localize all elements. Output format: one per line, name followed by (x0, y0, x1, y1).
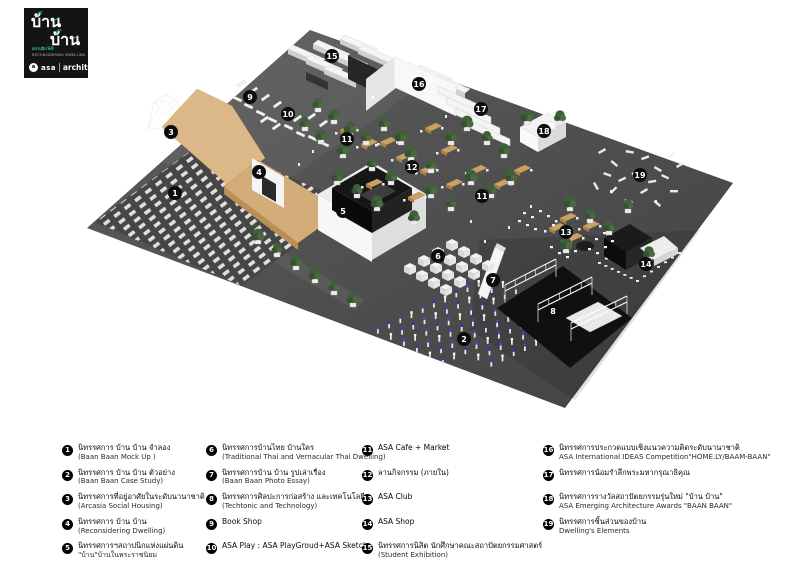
tree-planter (255, 240, 261, 244)
legend-number-badge: 11 (362, 445, 373, 456)
cafe-chair (382, 183, 385, 186)
tree-canopy (334, 285, 339, 290)
legend-item-text: ลานกิจกรรม (ภายใน) (378, 469, 449, 478)
model-pedestal (507, 317, 509, 322)
legend-number-badge: 13 (362, 494, 373, 505)
model-blue (474, 330, 476, 333)
legend-line-primary: ASA Play : ASA PlayGroud+ASA Sketch (222, 542, 356, 551)
marker-19: 19 (633, 168, 647, 182)
legend-item-4: 4นิทรรศการ บ้าน บ้าน(Reconsidering Dwell… (62, 518, 204, 543)
legend-line-primary: นิทรรศการชิ้นส่วนของบ้าน (559, 518, 646, 527)
marker-3: 3 (164, 125, 178, 139)
tree-canopy (526, 114, 533, 121)
tree-canopy (400, 134, 407, 141)
model-pedestal (424, 320, 426, 325)
legend-item-1: 1นิทรรศการ บ้าน บ้าน จำลอง(Baan Baan Moc… (62, 444, 204, 469)
marker-14: 14 (639, 257, 653, 271)
model-blue (425, 328, 427, 331)
legend-item-2: 2นิทรรศการ บ้าน บ้าน ตัวอย่าง(Baan Baan … (62, 469, 204, 494)
model-pedestal (498, 334, 500, 339)
model-pedestal (500, 345, 502, 350)
tree-canopy (305, 121, 310, 126)
model-pedestal (448, 321, 450, 326)
marker-number: 5 (340, 207, 346, 216)
tree-planter (340, 154, 346, 158)
tree-planter (302, 127, 308, 131)
stanchion-dash (623, 274, 626, 276)
legend-column-3: 11ASA Cafe + Market12ลานกิจกรรม (ภายใน)1… (362, 444, 538, 566)
legend-number-badge: 12 (362, 470, 373, 481)
tree-canopy (511, 175, 517, 181)
tree-planter (587, 219, 593, 223)
stanchion-dash (604, 265, 607, 267)
tree-canopy (404, 150, 411, 157)
legend-line-secondary: ASA Emerging Architecture Awards "BAAN B… (559, 502, 732, 510)
tree-canopy (559, 242, 566, 249)
marker-number: 18 (538, 127, 550, 136)
marker-17: 17 (474, 102, 488, 116)
legend-line-primary: นิทรรศการ บ้าน บ้าน (78, 518, 165, 527)
tree-canopy (451, 201, 456, 206)
model-pedestal (494, 311, 496, 316)
model-pedestal (524, 346, 526, 351)
legend-line-secondary: (Baan Baan Mock Up ) (78, 453, 170, 461)
model-blue (442, 357, 444, 360)
model-pedestal (485, 328, 487, 333)
marker-number: 19 (634, 171, 646, 180)
tree-planter (448, 141, 454, 145)
cafe-chair (356, 146, 359, 149)
tree-canopy (334, 114, 340, 120)
tree-canopy (308, 272, 315, 279)
cafe-chair (576, 217, 579, 220)
legend-item-text: ASA Cafe + Market (378, 444, 449, 453)
model-blue (423, 317, 425, 320)
legend-item-11: 11ASA Cafe + Market (362, 444, 538, 469)
tree-planter (398, 141, 404, 145)
visitor-speck (372, 96, 374, 99)
model-white (511, 338, 513, 340)
tree-planter (331, 120, 337, 124)
marker-number: 11 (476, 192, 488, 201)
legend-item-text: Book Shop (222, 518, 262, 527)
legend-number-badge: 8 (206, 494, 217, 505)
legend-number-badge: 9 (206, 519, 217, 530)
tree-canopy (353, 297, 359, 303)
model-pedestal (435, 314, 437, 319)
cafe-chair (420, 130, 423, 133)
stanchion-dash (664, 261, 667, 263)
model-pedestal (416, 348, 418, 353)
model-pedestal (478, 282, 480, 287)
legend-line-secondary: (Reconsidering Dwelling) (78, 527, 165, 535)
legend-item-13: 13ASA Club (362, 493, 538, 518)
tree-canopy (394, 134, 401, 141)
model-pedestal (411, 313, 413, 318)
marker-number: 17 (475, 105, 486, 114)
cafe-chair (375, 144, 378, 147)
model-pedestal (438, 337, 440, 342)
tree-canopy (337, 175, 343, 181)
tree-canopy (560, 115, 566, 121)
tree-planter (274, 253, 280, 257)
model-pedestal (472, 322, 474, 327)
tree-canopy (299, 121, 304, 126)
model-pedestal (459, 315, 461, 320)
tree-canopy (366, 161, 371, 166)
cafe-chair (391, 159, 394, 162)
model-blue (446, 306, 448, 309)
legend-number-badge: 1 (62, 445, 73, 456)
legend-line-secondary: (Student Exhibition) (378, 551, 538, 559)
model-pedestal (388, 324, 390, 329)
model-white (414, 334, 416, 336)
legend-item-7: 7นิทรรศการบ้าน บ้าน รูปเล่าเรื่อง(Baan B… (206, 469, 356, 494)
marker-number: 3 (168, 128, 174, 137)
exhibition-map: 1234567891011111213141516171819 (0, 0, 800, 435)
model-white (429, 352, 431, 354)
legend-item-5: 5นิทรรศการฯสถาปนิกแห่งแผ่นดิน"บ้าน"บ้านใ… (62, 542, 204, 566)
model-pedestal (490, 362, 492, 367)
club-chair (523, 212, 526, 214)
legend-item-text: นิทรรศการ บ้าน บ้าน ตัวอย่าง(Baan Baan C… (78, 469, 175, 486)
marker-number: 16 (413, 80, 425, 89)
model-blue (422, 305, 424, 308)
tree-canopy (649, 251, 655, 257)
visitor-speck (655, 200, 657, 203)
model-white (390, 333, 392, 335)
marker-13: 13 (559, 225, 573, 239)
stanchion-dash (630, 277, 633, 279)
cafe-chair (582, 237, 585, 240)
model-pedestal (489, 351, 491, 356)
tree-canopy (328, 114, 334, 120)
cafe-chair (530, 169, 533, 172)
legend-line-secondary: (Baan Baan Photo Essay) (222, 477, 326, 485)
visitor-speck (610, 190, 612, 193)
visitor-speck (298, 163, 300, 166)
marker-15: 15 (325, 49, 339, 63)
model-pedestal (444, 298, 446, 303)
cafe-chair (361, 186, 364, 189)
cafe-chair (436, 152, 439, 155)
tree-canopy (378, 121, 384, 127)
legend-number-badge: 19 (543, 519, 554, 530)
marker-18: 18 (537, 124, 551, 138)
model-pedestal (483, 316, 485, 321)
model-pedestal (433, 303, 435, 308)
marker-number: 14 (640, 260, 652, 269)
legend-item-text: นิทรรศการศิลปะการก่อสร้าง และเทคโนโลยี(T… (222, 493, 356, 510)
model-pedestal (477, 356, 479, 361)
model-pedestal (509, 329, 511, 334)
club-chair (558, 252, 561, 254)
tree-canopy (504, 148, 510, 154)
legend-line-secondary: ASA International IDEAS Competition"HOME… (559, 453, 771, 461)
tree-canopy (470, 174, 477, 181)
stanchion-dash (678, 252, 681, 254)
marker-number: 10 (282, 110, 294, 119)
model-blue (472, 319, 474, 322)
tree-canopy (312, 102, 317, 107)
model-blue (475, 341, 477, 344)
legend-item-text: นิทรรศการที่อยู่อาศัยในระดับนานาชาติ(Arc… (78, 493, 204, 510)
tree-planter (625, 209, 631, 213)
tree-canopy (391, 175, 397, 181)
model-pedestal (440, 349, 442, 354)
shop-blur-object (576, 241, 594, 251)
legend-line-primary: ASA Cafe + Market (378, 444, 449, 453)
visitor-speck (445, 115, 447, 118)
model-white (435, 312, 437, 314)
tree-canopy (331, 175, 337, 181)
model-blue (455, 290, 457, 293)
model-pedestal (535, 341, 537, 346)
model-pedestal (468, 299, 470, 304)
model-blue (513, 349, 515, 352)
tree-planter (501, 154, 507, 158)
model-pedestal (513, 352, 515, 357)
model-blue (457, 301, 459, 304)
model-white (459, 313, 461, 315)
stanchion-dash (643, 275, 646, 277)
legend-item-text: นิทรรศการชิ้นส่วนของบ้านDwelling's Eleme… (559, 518, 646, 535)
tree-canopy (351, 188, 356, 193)
logo-subtitle-thai: สถาปนิก'60 (32, 47, 54, 52)
tree-planter (312, 279, 318, 283)
legend-line-primary: นิทรรศการที่อยู่อาศัยในระดับนานาชาติ (78, 493, 204, 502)
club-chair (588, 248, 591, 250)
visitor-speck (312, 150, 314, 153)
tree-planter (448, 207, 454, 211)
model-pedestal (515, 289, 517, 294)
legend-column-2: 6นิทรรศการบ้านไทย บ้านใคร(Traditional Th… (206, 444, 356, 566)
model-pedestal (470, 310, 472, 315)
model-pedestal (446, 309, 448, 314)
model-blue (494, 308, 496, 311)
tree-canopy (590, 213, 595, 218)
model-blue (522, 332, 524, 335)
legend-line-primary: ASA Club (378, 493, 412, 502)
tree-canopy (336, 147, 343, 154)
model-blue (448, 318, 450, 321)
tree-canopy (628, 203, 633, 208)
marker-number: 15 (326, 52, 338, 61)
cafe-chair (441, 127, 444, 130)
club-chair (552, 224, 555, 226)
club-chair (531, 216, 534, 218)
marker-2: 2 (457, 332, 471, 346)
cafe-chair (599, 225, 602, 228)
cafe-chair (441, 186, 444, 189)
legend-number-badge: 17 (543, 470, 554, 481)
legend-item-8: 8นิทรรศการศิลปะการก่อสร้าง และเทคโนโลยี(… (206, 493, 356, 518)
tree-canopy (257, 233, 264, 240)
legend-line-secondary: (Techtonic and Technology) (222, 502, 356, 510)
model-pedestal (502, 357, 504, 362)
tree-canopy (321, 134, 327, 140)
legend-item-text: ASA Club (378, 493, 412, 502)
model-pedestal (429, 354, 431, 359)
model-blue (427, 339, 429, 342)
model-blue (416, 345, 418, 348)
club-chair (574, 250, 577, 252)
model-pedestal (511, 340, 513, 345)
club-chair (550, 246, 553, 248)
scatter-panel (670, 190, 678, 192)
tree-planter (354, 194, 360, 198)
visitor-speck (508, 226, 510, 229)
tree-canopy (372, 161, 377, 166)
tree-planter (428, 194, 434, 198)
model-pedestal (502, 283, 504, 288)
tree-planter (318, 140, 324, 144)
tree-canopy (347, 297, 353, 303)
tree-canopy (370, 200, 377, 207)
model-blue (449, 329, 451, 332)
legend-line-primary: นิทรรศการศิลปะการก่อสร้าง และเทคโนโลยี (222, 493, 356, 502)
marker-7: 7 (486, 273, 500, 287)
stanchion-dash (598, 262, 601, 264)
tree-planter (331, 291, 337, 295)
legend-item-17: 17นิทรรศการน้อมรำลึกพระมหากรุณาธิคุณ (543, 469, 795, 494)
tree-planter (484, 141, 490, 145)
club-chair (604, 246, 607, 248)
marker-number: 11 (341, 135, 353, 144)
tree-canopy (505, 175, 511, 181)
marker-8: 8 (546, 304, 560, 318)
legend-number-badge: 14 (362, 519, 373, 530)
legend-line-secondary: (Baan Baan Case Study) (78, 477, 175, 485)
logo-subtitle-en: RECONSIDERING DWELLING (32, 53, 86, 57)
cafe-chair (462, 183, 465, 186)
model-pedestal (442, 360, 444, 365)
asa-wordmark: asa (41, 64, 56, 72)
tree-planter (606, 231, 612, 235)
marker-number: 12 (406, 163, 417, 172)
legend-number-badge: 18 (543, 494, 554, 505)
model-blue (524, 343, 526, 346)
club-chair (534, 228, 537, 230)
tree-planter (557, 121, 563, 125)
legend-number-badge: 6 (206, 445, 217, 456)
model-pedestal (522, 335, 524, 340)
visitor-speck (470, 220, 472, 223)
model-blue (500, 342, 502, 345)
logo-divider (59, 63, 60, 72)
legend-line-primary: นิทรรศการประกวดแบบเชิงแนวความคิดระดับนาน… (559, 444, 771, 453)
club-chair (539, 210, 542, 212)
model-white (483, 314, 485, 316)
tree-canopy (569, 200, 576, 207)
tree-canopy (554, 115, 560, 121)
tree-canopy (431, 163, 436, 168)
tree-canopy (376, 200, 383, 207)
model-white (453, 353, 455, 355)
marker-11: 11 (340, 132, 354, 146)
model-pedestal (474, 333, 476, 338)
poster-canvas: 1234567891011111213141516171819 บ้าน บ้า… (0, 0, 800, 566)
legend-line-primary: Book Shop (222, 518, 262, 527)
tree-canopy (384, 121, 390, 127)
club-chair (611, 240, 614, 242)
model-pedestal (464, 350, 466, 355)
legend-number-badge: 2 (62, 470, 73, 481)
tree-canopy (318, 102, 323, 107)
model-white (468, 297, 470, 299)
tree-canopy (451, 135, 457, 141)
model-blue (377, 326, 379, 329)
legend-item-text: ASA Play : ASA PlayGroud+ASA Sketch (222, 542, 356, 551)
legend-column-4: 16นิทรรศการประกวดแบบเชิงแนวความคิดระดับน… (543, 444, 795, 542)
model-pedestal (450, 332, 452, 337)
legend-line-secondary: Dwelling's Elements (559, 527, 646, 535)
legend-number-badge: 4 (62, 519, 73, 530)
tree-canopy (328, 285, 333, 290)
legend-item-text: นิทรรศการบ้านไทย บ้านใคร(Traditional Tha… (222, 444, 356, 461)
cafe-chair (403, 199, 406, 202)
tree-planter (334, 181, 340, 185)
model-pedestal (414, 336, 416, 341)
event-logo: บ้าน บ้าน สถาปนิก'60 RECONSIDERING DWELL… (24, 8, 88, 78)
model-blue (490, 359, 492, 362)
legend-item-text: นิทรรศการฯสถาปนิกแห่งแผ่นดิน"บ้าน"บ้านใน… (78, 542, 183, 559)
stanchion-dash (611, 268, 614, 270)
tree-canopy (385, 175, 391, 181)
marker-10: 10 (281, 107, 295, 121)
model-pedestal (401, 330, 403, 335)
model-pedestal (427, 342, 429, 347)
model-white (492, 298, 494, 300)
tree-planter (464, 127, 470, 131)
tree-canopy (481, 135, 486, 140)
legend-number-badge: 15 (362, 543, 373, 554)
model-blue (470, 307, 472, 310)
tree-canopy (520, 114, 527, 121)
legend-item-text: นิทรรศการ บ้าน บ้าน(Reconsidering Dwelli… (78, 518, 165, 535)
tree-planter (563, 249, 569, 253)
model-pedestal (455, 293, 457, 298)
tree-canopy (563, 200, 570, 207)
model-pedestal (451, 343, 453, 348)
legend-item-18: 18นิทรรศการรางวัลสถาปัตยกรรมรุ่นใหม่ "บ้… (543, 493, 795, 518)
club-chair (547, 215, 550, 217)
marker-number: 7 (490, 276, 496, 285)
tree-canopy (366, 135, 371, 140)
marker-16: 16 (412, 77, 426, 91)
tree-canopy (277, 247, 282, 252)
model-blue (412, 322, 414, 325)
legend-item-16: 16นิทรรศการประกวดแบบเชิงแนวความคิดระดับน… (543, 444, 795, 469)
tree-canopy (315, 134, 321, 140)
model-blue (481, 302, 483, 305)
tree-planter (508, 181, 514, 185)
legend-item-15: 15นิทรรศการนิสิต นักศึกษาคณะสถาปัตยกรรมศ… (362, 542, 538, 566)
model-blue (388, 321, 390, 324)
model-blue (464, 347, 466, 350)
club-chair (566, 256, 569, 258)
legend-number-badge: 16 (543, 445, 554, 456)
model-white (501, 355, 503, 357)
legend-item-9: 9Book Shop (206, 518, 356, 543)
marker-number: 13 (560, 228, 571, 237)
tree-canopy (584, 213, 589, 218)
legend-line-primary: นิทรรศการบ้าน บ้าน รูปเล่าเรื่อง (222, 469, 326, 478)
legend-number-badge: 5 (62, 543, 73, 554)
legend-item-text: นิทรรศการน้อมรำลึกพระมหากรุณาธิคุณ (559, 469, 690, 478)
model-blue (436, 323, 438, 326)
tree-planter (524, 121, 530, 125)
